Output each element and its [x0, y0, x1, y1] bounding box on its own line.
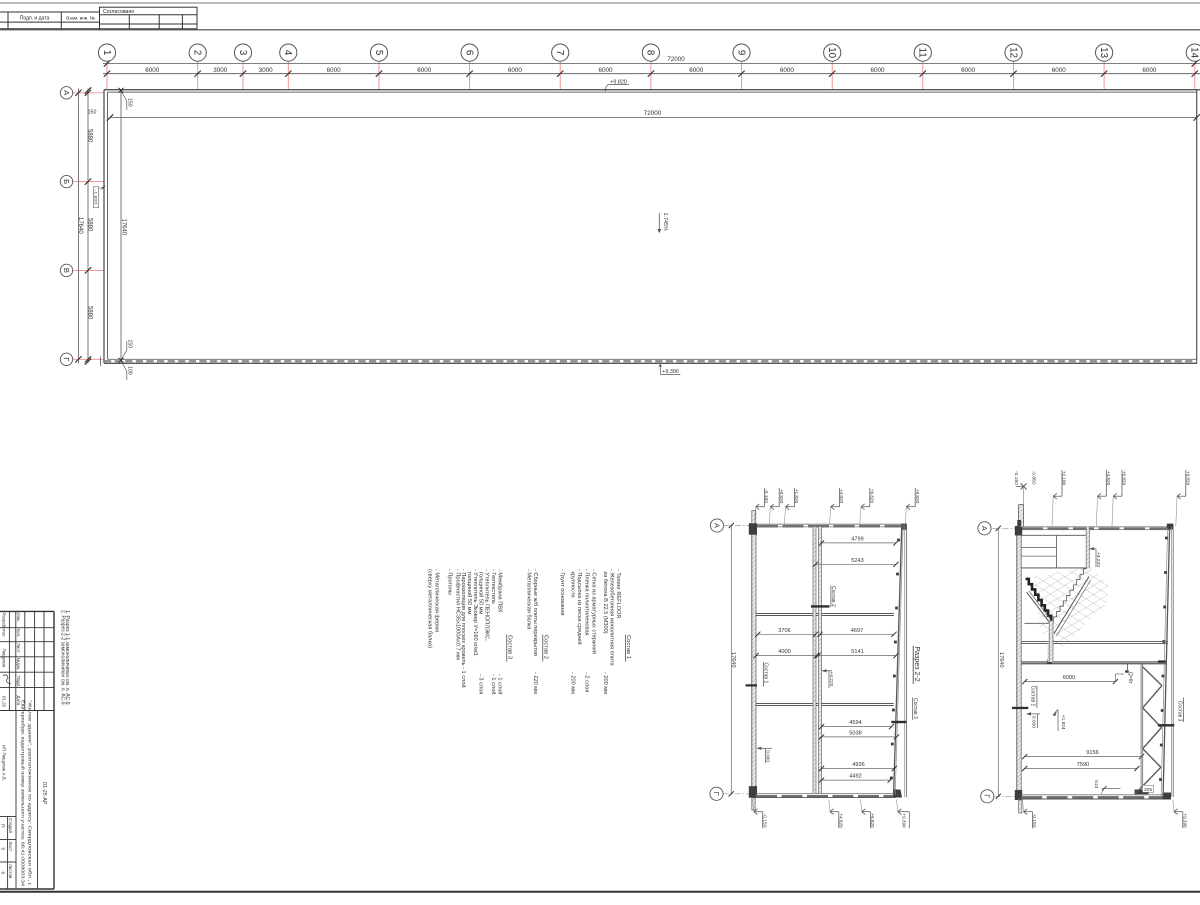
svg-text:510: 510 — [1093, 780, 1099, 788]
svg-text:Пищулин: Пищулин — [2, 649, 7, 668]
svg-text:+1.824: +1.824 — [1060, 715, 1066, 730]
svg-text:150: 150 — [126, 98, 132, 107]
svg-text:- Подсыпка из песка средней: - Подсыпка из песка средней — [576, 569, 583, 645]
svg-text:- Сборные ж/б плиты перекрытия: - Сборные ж/б плиты перекрытия — [532, 569, 538, 656]
svg-text:Разрез 2-2: Разрез 2-2 — [913, 647, 922, 682]
svg-text:Лист: Лист — [8, 842, 13, 852]
svg-text:- Прогоны: - Прогоны — [447, 569, 453, 595]
svg-text:4000: 4000 — [778, 649, 790, 655]
svg-text:17640: 17640 — [730, 652, 736, 668]
svg-text:6: 6 — [463, 50, 474, 56]
svg-text:6000: 6000 — [1063, 675, 1075, 681]
svg-text:Состав 1: Состав 1 — [762, 663, 768, 684]
svg-text:+4.820: +4.820 — [838, 814, 843, 829]
svg-text:6000: 6000 — [145, 67, 160, 74]
svg-text:Изм.: Изм. — [16, 613, 21, 622]
svg-text:+2.100: +2.100 — [1062, 471, 1067, 486]
svg-text:-0.850: -0.850 — [1032, 471, 1037, 486]
svg-text:2. Разрез 2-2 замоноличиван см: 2. Разрез 2-2 замоноличиван см. л. АС-9. — [59, 610, 65, 706]
svg-text:- Профнастил НС35х1000Ах0.7 мм: - Профнастил НС35х1000Ах0.7 мм — [454, 569, 460, 660]
svg-text:+6.820: +6.820 — [869, 489, 874, 504]
svg-text:- 2 слоя: - 2 слоя — [584, 672, 590, 692]
svg-text:6000: 6000 — [689, 67, 704, 74]
svg-text:100: 100 — [126, 366, 132, 375]
svg-text:Состав 2: Состав 2 — [542, 635, 548, 659]
svg-text:Согласовано: Согласовано — [103, 9, 134, 15]
svg-text:205: 205 — [1144, 787, 1152, 793]
svg-text:Лист: Лист — [16, 643, 21, 653]
svg-text:6000: 6000 — [780, 67, 795, 74]
svg-text:"Жилое здание", расположенное: "Жилое здание", расположенное по адресу:… — [28, 700, 33, 886]
svg-text:6000: 6000 — [327, 67, 342, 74]
svg-text:- 1 слой: - 1 слой — [496, 674, 503, 694]
svg-text:- Грунт основания: - Грунт основания — [559, 569, 565, 616]
svg-text:13: 13 — [1098, 47, 1109, 58]
svg-text:- Железобетонная монолитная пл: - Железобетонная монолитная плита — [608, 569, 614, 667]
svg-text:+4.220: +4.220 — [1095, 552, 1101, 567]
svg-text:Г: Г — [983, 794, 992, 798]
svg-text:3706: 3706 — [778, 628, 790, 634]
svg-text:+4.820: +4.820 — [1106, 471, 1111, 486]
svg-text:4799: 4799 — [851, 537, 863, 543]
svg-text:П: П — [0, 824, 6, 828]
svg-text:А: А — [712, 523, 721, 528]
svg-text:Стадия: Стадия — [8, 818, 13, 834]
svg-text:- 1 слой: - 1 слой — [490, 674, 497, 694]
svg-text:1.745%: 1.745% — [662, 213, 668, 231]
svg-text:9: 9 — [735, 50, 746, 55]
svg-text:5: 5 — [0, 848, 6, 851]
svg-text:3: 3 — [237, 50, 248, 56]
svg-text:2: 2 — [192, 50, 203, 55]
svg-text:- Геотекстиль: - Геотекстиль — [490, 569, 496, 604]
svg-text:72000: 72000 — [644, 110, 662, 117]
svg-text:6000: 6000 — [870, 67, 885, 74]
svg-text:11: 11 — [917, 48, 928, 58]
svg-text:0.000: 0.000 — [1031, 716, 1037, 728]
svg-text:- 200 мм: - 200 мм — [602, 672, 608, 694]
svg-text:- 3 слоя: - 3 слоя — [478, 674, 484, 694]
svg-text:150: 150 — [88, 110, 97, 116]
svg-text:- Мембрана ПВХ: - Мембрана ПВХ — [496, 569, 502, 613]
svg-text:(сверху металлическая балка): (сверху металлическая балка) — [427, 569, 433, 648]
svg-text:3000: 3000 — [259, 67, 274, 74]
svg-text:-0.150: -0.150 — [1032, 814, 1037, 829]
svg-text:-0.150: -0.150 — [764, 489, 769, 504]
svg-text:Подп.: Подп. — [16, 676, 21, 688]
svg-text:6000: 6000 — [1142, 67, 1157, 74]
svg-text:Подп. и дата: Подп. и дата — [20, 15, 50, 21]
svg-text:6000: 6000 — [417, 67, 432, 74]
svg-text:6000: 6000 — [1052, 67, 1067, 74]
svg-text:Состав 2: Состав 2 — [830, 586, 836, 607]
svg-text:6000: 6000 — [508, 67, 523, 74]
svg-text:Г: Г — [712, 792, 721, 796]
svg-text:0.000: 0.000 — [765, 750, 771, 762]
svg-text:5141: 5141 — [851, 649, 863, 655]
svg-text:4697: 4697 — [851, 628, 863, 634]
svg-text:1: 1 — [101, 50, 112, 55]
svg-text:Кол.: Кол. — [16, 629, 21, 638]
svg-text:17640: 17640 — [120, 219, 126, 236]
svg-text:14: 14 — [1189, 47, 1200, 58]
svg-text:Состав 1: Состав 1 — [1030, 686, 1036, 707]
svg-text:Листов: Листов — [8, 864, 13, 879]
svg-text:Q=6т: Q=6т — [1127, 672, 1133, 685]
svg-text:- 220 мм: - 220 мм — [532, 672, 538, 694]
svg-text:01.25: 01.25 — [2, 696, 7, 708]
svg-text:+9.390: +9.390 — [662, 369, 679, 375]
svg-text:Г: Г — [62, 357, 71, 361]
svg-text:5880: 5880 — [87, 306, 93, 320]
svg-text:+9.820: +9.820 — [915, 489, 920, 504]
svg-text:4594: 4594 — [849, 720, 861, 726]
svg-text:Состав 3: Состав 3 — [506, 635, 512, 659]
svg-text:17640: 17640 — [998, 652, 1004, 668]
svg-text:7590: 7590 — [1077, 762, 1089, 768]
svg-text:- 200 мм: - 200 мм — [569, 672, 575, 694]
svg-text:17640: 17640 — [77, 217, 83, 234]
svg-text:6000: 6000 — [961, 67, 976, 74]
svg-text:72000: 72000 — [667, 56, 685, 63]
svg-text:12: 12 — [1007, 47, 1018, 58]
svg-text:Б: Б — [62, 179, 71, 184]
svg-text:-0.150: -0.150 — [1014, 471, 1019, 486]
svg-text:- Топинг REFLOOR: - Топинг REFLOOR — [615, 569, 621, 618]
svg-text:+4.820: +4.820 — [839, 489, 844, 504]
svg-text:Разработал: Разработал — [2, 613, 7, 637]
svg-text:+6.820: +6.820 — [870, 814, 875, 829]
svg-text:7: 7 — [554, 50, 565, 55]
svg-text:4: 4 — [282, 50, 293, 56]
svg-text:- Сетка из арматурных стержней: - Сетка из арматурных стержней — [590, 569, 597, 654]
svg-text:№док.: №док. — [16, 658, 21, 671]
svg-text:150: 150 — [126, 340, 132, 349]
svg-text:- Пленка полиэтиленовая: - Пленка полиэтиленовая — [584, 569, 590, 636]
svg-text:- Металлическая балка: - Металлическая балка — [525, 569, 531, 630]
svg-text:+5.820: +5.820 — [1122, 471, 1127, 486]
svg-text:Состав 3: Состав 3 — [912, 698, 918, 719]
svg-text:3000: 3000 — [213, 67, 228, 74]
svg-text:+0.820: +0.820 — [779, 489, 784, 504]
svg-text:+4.220: +4.220 — [828, 672, 834, 687]
svg-text:5: 5 — [373, 50, 384, 56]
svg-text:+9.390: +9.390 — [901, 814, 906, 829]
svg-text:крупности: крупности — [569, 572, 575, 598]
svg-text:+9.820: +9.820 — [610, 79, 627, 85]
svg-text:10: 10 — [826, 47, 837, 58]
svg-text:5038: 5038 — [849, 731, 861, 737]
svg-text:+9.390: +9.390 — [1182, 814, 1187, 829]
svg-text:- Металлическая ферма: - Металлическая ферма — [433, 569, 439, 633]
svg-text:5880: 5880 — [87, 218, 93, 232]
svg-text:Взам. инв. №: Взам. инв. № — [66, 15, 95, 20]
svg-text:8: 8 — [645, 50, 656, 56]
svg-text:Дата: Дата — [16, 696, 21, 706]
svg-text:ИП Пищулин А.В.: ИП Пищулин А.В. — [2, 745, 7, 781]
svg-text:Состав 1: Состав 1 — [625, 635, 631, 659]
svg-text:-1.820: -1.820 — [94, 190, 99, 206]
svg-text:6000: 6000 — [598, 67, 613, 74]
svg-text:из бетона В 22.5 (М300): из бетона В 22.5 (М300) — [602, 572, 608, 634]
svg-text:Состав 3: Состав 3 — [1176, 701, 1182, 722]
svg-text:А: А — [980, 526, 989, 531]
svg-text:9156: 9156 — [1086, 750, 1098, 756]
svg-text:4492: 4492 — [849, 774, 861, 780]
svg-text:+1.820: +1.820 — [794, 489, 799, 504]
svg-text:-0.150: -0.150 — [762, 814, 767, 829]
svg-text:В: В — [62, 268, 71, 273]
svg-text:5880: 5880 — [87, 129, 93, 143]
svg-text:4936: 4936 — [852, 762, 864, 768]
svg-text:01-25 АР: 01-25 АР — [41, 782, 47, 805]
svg-text:5243: 5243 — [851, 558, 863, 564]
svg-text:Екатеринбург, кадастровый номе: Екатеринбург, кадастровый номер земельно… — [21, 700, 26, 887]
svg-text:6: 6 — [0, 872, 6, 875]
svg-text:+9.820: +9.820 — [1185, 471, 1190, 486]
